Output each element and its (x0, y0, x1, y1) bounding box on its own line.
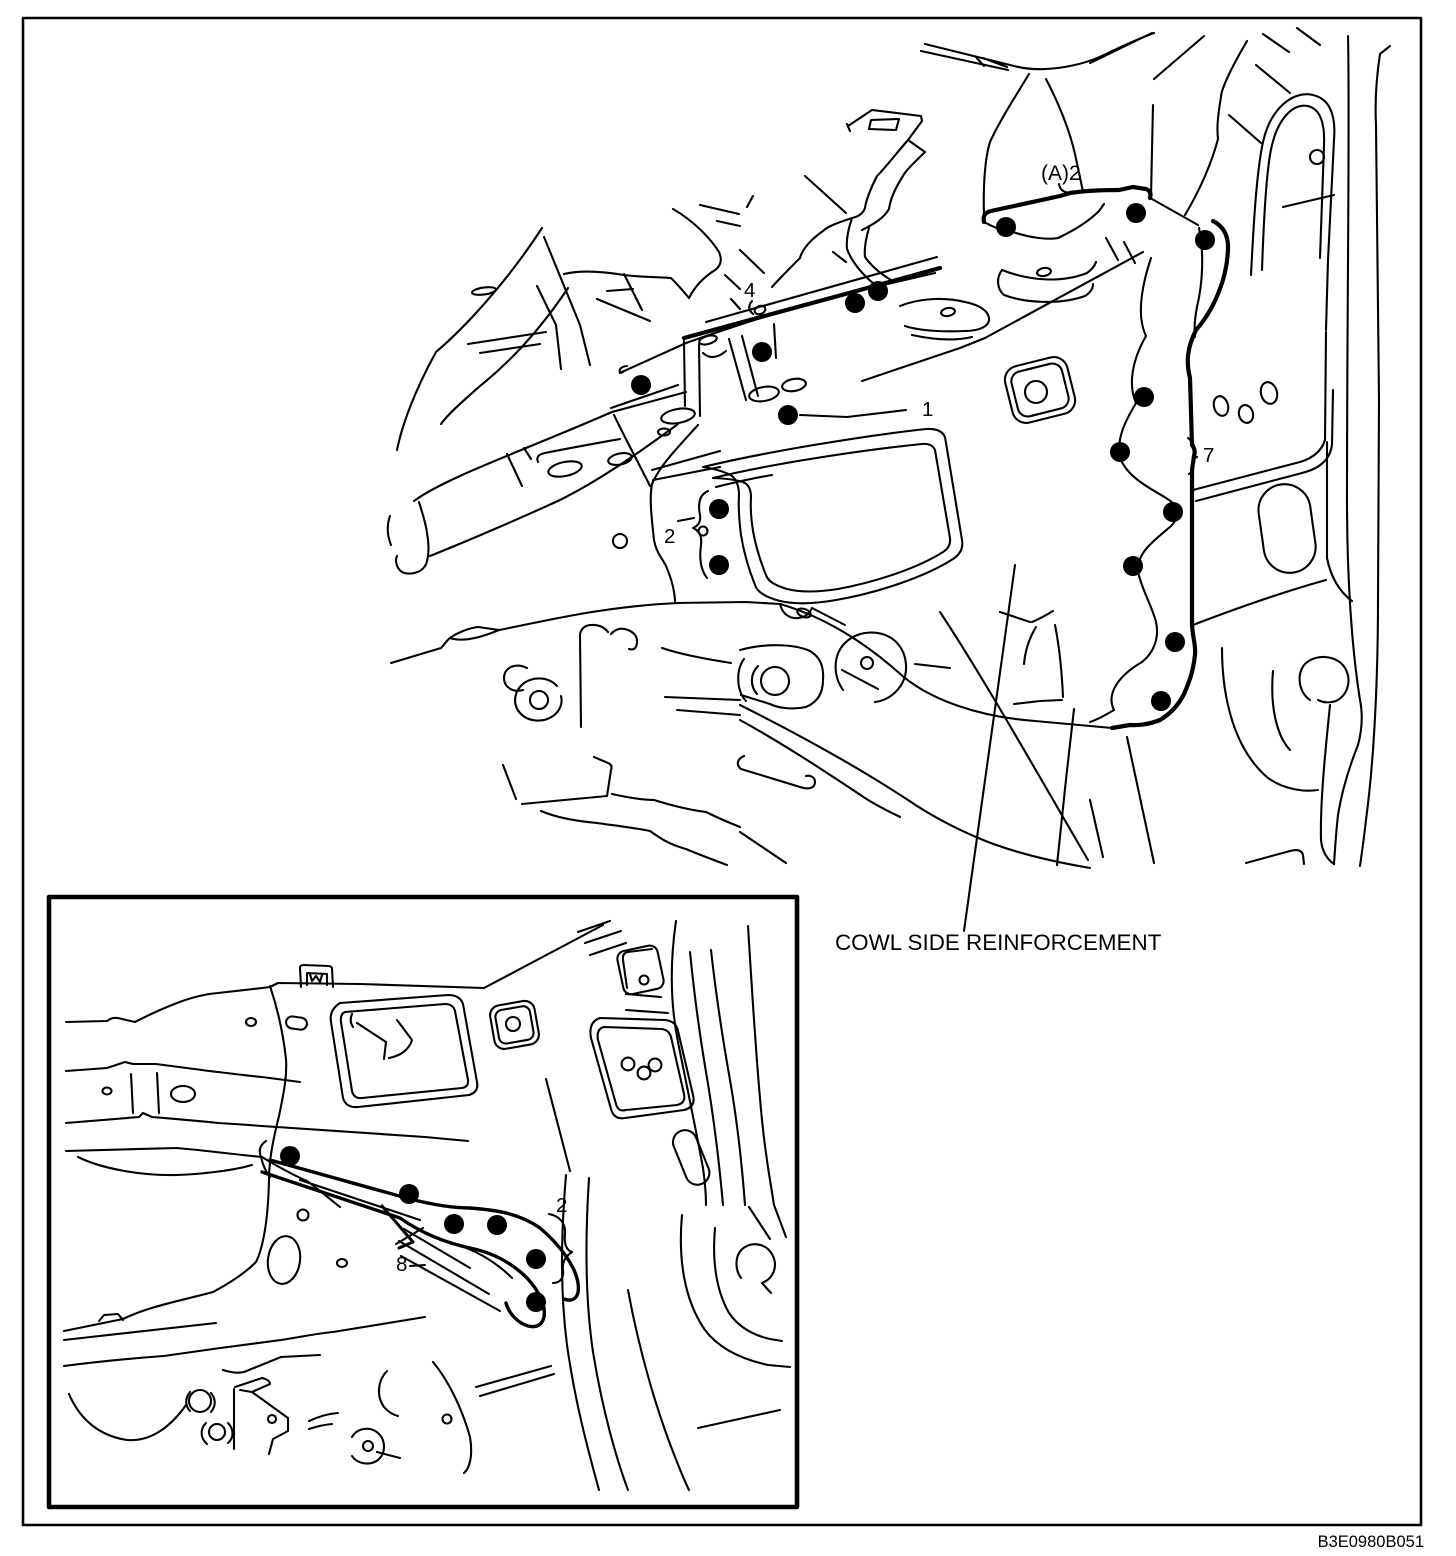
svg-text:7: 7 (1203, 444, 1214, 467)
svg-text:(A)2: (A)2 (1041, 162, 1081, 185)
svg-text:COWL SIDE REINFORCEMENT: COWL SIDE REINFORCEMENT (835, 930, 1162, 955)
svg-text:1: 1 (922, 398, 933, 421)
svg-text:2: 2 (664, 525, 675, 548)
svg-text:2: 2 (556, 1194, 567, 1217)
svg-text:4: 4 (744, 279, 755, 302)
svg-text:B3E0980B051: B3E0980B051 (1318, 1533, 1424, 1551)
